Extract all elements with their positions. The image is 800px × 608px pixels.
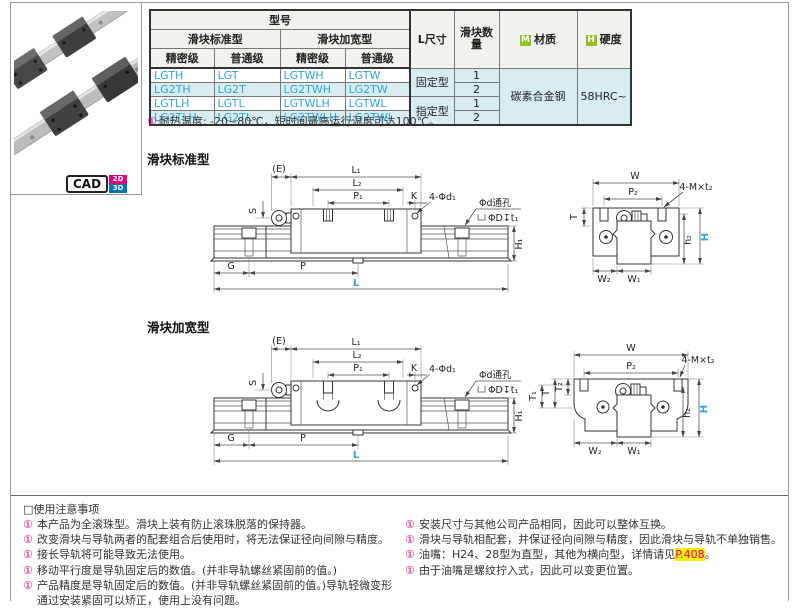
model-link[interactable]: LGTWL [345,97,410,111]
cad-button[interactable]: CAD [66,175,108,193]
dim-label-h1: H₁ [514,238,525,249]
heat-resistance-note: ①耐热温度: -20~80℃，短时间最高运行温度可达100℃。 [147,113,440,129]
dim-label-4-phi-d1: 4-Φd₁ [429,192,456,203]
dim-label-w1: W₁ [627,274,640,285]
usage-notes-title: □使用注意事项 [23,501,99,517]
table-row: LGTH LGT LGTWH LGTW 固定型 1 碳素合金钢 58HRC~ [150,68,631,83]
model-link[interactable]: LG2TH [150,83,214,97]
qty-value: 2 [454,83,499,97]
dim-label-p: P [300,261,306,272]
dim-label-h2: h₂ [683,235,694,245]
dim-label-counterbore: ΦD↧t₁ [488,213,518,224]
grease-nipple [272,211,292,226]
model-link[interactable]: LGTWLH [280,97,345,111]
hardness-badge-icon: H [586,35,597,46]
col-header-hardness: H硬度 [577,10,631,68]
model-link[interactable]: LG2TWH [280,83,345,97]
dim-label-l: L [353,278,360,289]
product-photo-box [11,3,142,195]
note-marker-icon: ① [23,532,35,547]
col-header-precision: 精密级 [150,49,214,69]
dim-label-t2: T₂ [554,382,565,393]
dim-label-h2: h₂ [682,408,693,418]
usage-note: ① 接长导轨将可能导致无法使用。 [23,547,397,562]
col-header-model: 型号 [150,10,410,30]
product-photo [14,11,138,169]
dim-label-t: T [569,214,580,221]
standard-type-diagram: (E) L₁ L₂ P₁ K 4-Φd₁ S Φd通孔 ΦD↧t₁ [151,161,786,309]
usage-note: ① 本产品为全滚珠型。滑块上装有防止滚珠脱落的保持器。 [23,517,397,532]
qty-value: 2 [454,111,499,126]
note-marker-icon: ① [405,563,417,578]
note-marker-icon: ① [405,532,417,547]
note-marker-icon: ① [147,115,157,128]
note-marker-icon: ① [23,563,35,578]
wide-end-view: W P₂ 4-M×t₂ T₁ T T₂ h₂ H W₂ [528,343,715,457]
col-header-normal: 普通级 [345,49,410,69]
dim-label-l: L [353,450,360,461]
dim-label-e: (E) [272,336,285,347]
note-marker-icon: ① [23,547,35,562]
col-header-l-size: L尺寸 [410,10,454,68]
rail-cross-section [613,221,655,264]
model-link[interactable]: LGTWH [280,68,345,83]
dim-label-t1: T₁ [528,391,539,402]
model-link[interactable]: LG2T [214,83,280,97]
dim-label-p1: P₁ [353,191,363,202]
col-header-precision: 精密级 [280,49,345,69]
usage-note: ① 由于油嘴是螺纹拧入式，因此可以变更位置。 [405,563,783,578]
col-header-normal: 普通级 [214,49,280,69]
dim-label-through-hole: Φd通孔 [479,198,512,209]
model-link[interactable]: LGTL [214,97,280,111]
note-marker-icon: ① [405,547,417,562]
dim-label-p1: P₁ [353,363,363,374]
col-header-material: M材质 [499,10,577,68]
dim-label-h: H [699,405,710,413]
note-marker-icon: ① [23,517,35,532]
cad-2d-badge[interactable]: 2D [109,175,127,184]
dim-label-s: S [248,208,259,214]
model-link[interactable]: LGT [214,68,280,83]
counterbore-symbol-icon [478,214,485,220]
col-header-wide: 滑块加宽型 [280,30,410,49]
dim-label-4-m-t2: 4-M×t₂ [679,182,712,193]
dim-label-s: S [248,380,259,386]
dim-label-4-m-t2: 4-M×t₂ [681,355,714,366]
dim-label-l2: L₂ [352,350,361,361]
usage-note: ① 改变滑块与导轨两者的配套组合后使用时，将无法保证径向间隙与精度。 [23,532,397,547]
dim-label-w: W [626,343,636,354]
slider-block [291,209,421,253]
dim-label-g: G [227,261,234,272]
dim-label-p2: P₂ [626,361,636,372]
cad-download: CAD 2D 3D [66,175,127,193]
wide-type-diagram: (E) L₁ L₂ P₁ K 4-Φd₁ S Φd通孔 ΦD↧t₁ [151,333,786,481]
dim-label-through-hole: Φd通孔 [479,370,512,381]
usage-notes-section: □使用注意事项 ① 本产品为全滚珠型。滑块上装有防止滚珠脱落的保持器。 ① 改变… [11,495,788,601]
dim-label-counterbore: ΦD↧t₁ [488,385,518,396]
model-spec-table: 型号 L尺寸 滑块数量 M材质 H硬度 滑块标准型 滑块加宽型 精密级 普通级 … [149,9,632,126]
l-type-fixed: 固定型 [410,68,454,97]
usage-note: ① 油嘴：H24、28型为直型，其他为横向型，详情请见P.408。 [405,547,783,562]
dim-label-w: W [630,171,640,182]
dim-label-l1: L₁ [351,337,360,348]
dim-label-w2: W₂ [597,274,610,285]
dim-label-p: P [300,433,306,444]
dim-label-k: K [411,363,418,374]
dim-label-t: T [541,390,552,397]
model-link[interactable]: LGTW [345,68,410,83]
dim-label-k: K [411,191,418,202]
slider-block-wide [291,381,421,425]
col-header-qty: 滑块数量 [454,10,499,68]
cad-3d-badge[interactable]: 3D [109,184,127,193]
dim-label-g: G [227,433,234,444]
page-frame: CAD 2D 3D 型号 L尺寸 滑块数量 M材质 H硬度 滑块标准型 滑块加宽… [10,2,789,601]
note-marker-icon: ① [405,517,417,532]
standard-side-view: (E) L₁ L₂ P₁ K 4-Φd₁ S Φd通孔 ΦD↧t₁ [211,164,525,293]
rail-cross-section [613,395,655,437]
hardness-value: 58HRC~ [577,68,631,125]
model-link[interactable]: LGTLH [150,97,214,111]
dim-label-l2: L₂ [352,178,361,189]
wide-side-view: (E) L₁ L₂ P₁ K 4-Φd₁ S Φd通孔 ΦD↧t₁ [211,336,525,465]
usage-note: ① 安装尺寸与其他公司产品相同，因此可以整体互换。 [405,517,783,532]
usage-note: ① 滑块与导轨相配套，并保证径向间隙与精度，因此滑块与导轨不单独销售。 [405,532,783,547]
usage-note: ① 产品精度是导轨固定后的数值。(并非导轨螺丝紧固前的值。)导轨轻微变形通过安装… [23,578,397,608]
counterbore-symbol-icon [478,386,485,392]
dim-label-p2: P₂ [628,187,638,198]
dim-label-w2: W₂ [588,446,601,457]
page-link[interactable]: P.408 [675,548,704,561]
qty-value: 1 [454,97,499,111]
material-badge-icon: M [520,35,531,46]
dim-label-h1: H₁ [514,410,525,421]
qty-value: 1 [454,68,499,83]
dim-label-4-phi-d1: 4-Φd₁ [429,364,456,375]
rail-bottom-hole [353,258,363,263]
material-value: 碳素合金钢 [499,68,577,125]
dim-label-e: (E) [272,164,285,175]
dim-label-w1: W₁ [627,446,640,457]
rail-bottom-hole [353,430,363,435]
dim-label-l1: L₁ [351,165,360,176]
usage-note: ① 移动平行度是导轨固定后的数值。(并非导轨螺丝紧固前的值。) [23,563,397,578]
note-marker-icon: ① [23,578,35,608]
dim-label-h: H [700,233,711,241]
grease-nipple [272,383,292,398]
model-link[interactable]: LG2TW [345,83,410,97]
col-header-standard: 滑块标准型 [150,30,280,49]
model-link[interactable]: LGTH [150,68,214,83]
standard-end-view: W P₂ 4-M×t₂ T h₂ H W₂ W₁ [569,171,713,285]
